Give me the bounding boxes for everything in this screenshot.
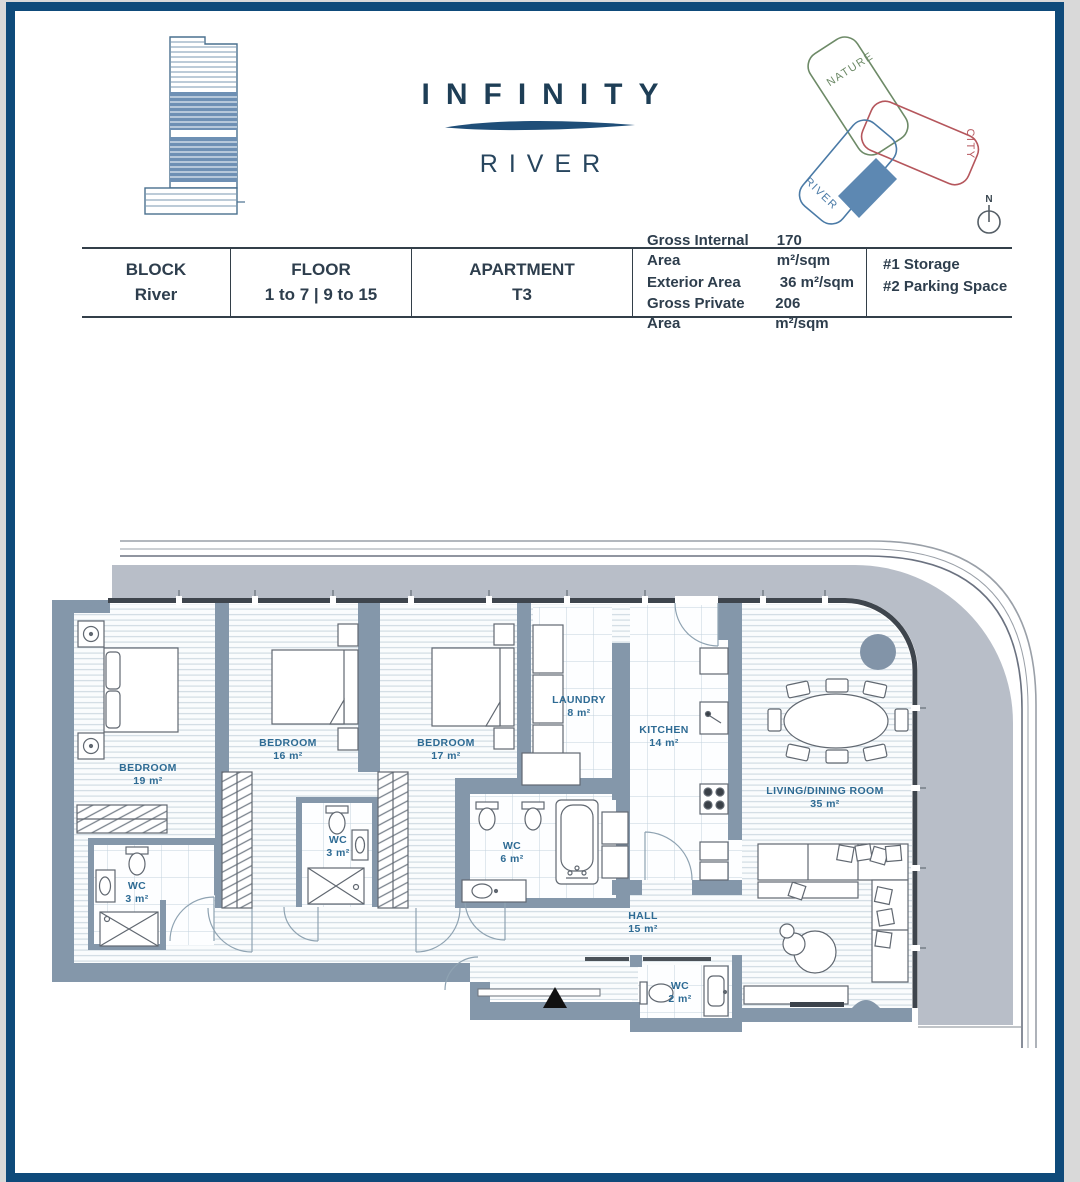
room-name: BEDROOM xyxy=(119,762,177,775)
info-cell-block: BLOCK River xyxy=(82,249,230,316)
apartment-highlight xyxy=(838,158,897,218)
room-area: 15 m² xyxy=(628,923,658,936)
room-label-wc3-mid: WC 3 m² xyxy=(326,834,349,860)
info-table: BLOCK River FLOOR 1 to 7 | 9 to 15 APART… xyxy=(82,247,1012,318)
room-area: 17 m² xyxy=(417,750,475,763)
room-name: BEDROOM xyxy=(417,737,475,750)
room-area: 35 m² xyxy=(766,798,883,811)
entry-door-leaf xyxy=(478,989,600,996)
room-name: WC xyxy=(326,834,349,847)
structural-column xyxy=(860,634,896,670)
area-row: Gross Private Area 206 m²/sqm xyxy=(647,294,854,334)
river-label: RIVER xyxy=(802,175,840,212)
room-name: HALL xyxy=(628,910,658,923)
room-label-kitchen: KITCHEN 14 m² xyxy=(639,724,688,750)
area-label: Exterior Area xyxy=(647,273,741,293)
room-name: WC xyxy=(125,880,148,893)
area-label: Gross Private Area xyxy=(647,294,775,334)
block-label: BLOCK xyxy=(126,260,186,280)
area-value: 206 m²/sqm xyxy=(775,294,854,334)
room-name: LAUNDRY xyxy=(552,694,606,707)
site-orientation-diagram: NATURE CITY RIVER N xyxy=(795,18,1035,243)
floor-label: FLOOR xyxy=(291,260,351,280)
apartment-value: T3 xyxy=(512,285,532,305)
compass-north-label: N xyxy=(985,194,992,205)
room-label-living-dining: LIVING/DINING ROOM 35 m² xyxy=(766,785,883,811)
info-cell-apartment: APARTMENT T3 xyxy=(411,249,632,316)
room-label-bedroom-17: BEDROOM 17 m² xyxy=(417,737,475,763)
brand-title: INFINITY xyxy=(370,78,710,112)
room-area: 8 m² xyxy=(552,707,606,720)
area-row: Gross Internal Area 170 m²/sqm xyxy=(647,231,854,271)
nature-label: NATURE xyxy=(825,50,876,89)
floor-plan xyxy=(0,500,1080,1080)
city-label: CITY xyxy=(964,128,976,159)
room-name: BEDROOM xyxy=(259,737,317,750)
extra-parking: #2 Parking Space xyxy=(883,277,1007,297)
room-area: 2 m² xyxy=(668,993,691,1006)
room-label-wc6: WC 6 m² xyxy=(500,840,523,866)
room-area: 3 m² xyxy=(125,893,148,906)
room-label-bedroom-19: BEDROOM 19 m² xyxy=(119,762,177,788)
room-area: 3 m² xyxy=(326,847,349,860)
area-label: Gross Internal Area xyxy=(647,231,777,271)
room-area: 6 m² xyxy=(500,853,523,866)
room-label-bedroom-16: BEDROOM 16 m² xyxy=(259,737,317,763)
compass-icon: N xyxy=(978,194,1000,233)
info-cell-areas: Gross Internal Area 170 m²/sqm Exterior … xyxy=(632,249,866,316)
room-name: WC xyxy=(500,840,523,853)
floor-value: 1 to 7 | 9 to 15 xyxy=(265,285,377,305)
area-value: 36 m²/sqm xyxy=(780,273,854,293)
block-value: River xyxy=(135,285,178,305)
area-row: Exterior Area 36 m²/sqm xyxy=(647,273,854,293)
apartment-label: APARTMENT xyxy=(469,260,574,280)
room-area: 14 m² xyxy=(639,737,688,750)
room-label-wc3-left: WC 3 m² xyxy=(125,880,148,906)
info-cell-floor: FLOOR 1 to 7 | 9 to 15 xyxy=(230,249,411,316)
extra-storage: #1 Storage xyxy=(883,255,960,275)
area-value: 170 m²/sqm xyxy=(777,231,854,271)
room-name: KITCHEN xyxy=(639,724,688,737)
tower-logo-icon xyxy=(140,34,250,220)
room-label-laundry: LAUNDRY 8 m² xyxy=(552,694,606,720)
room-name: WC xyxy=(668,980,691,993)
room-name: LIVING/DINING ROOM xyxy=(766,785,883,798)
wc2-sliding-door xyxy=(585,957,711,961)
info-cell-extras: #1 Storage #2 Parking Space xyxy=(866,249,1012,316)
nature-wing-outline xyxy=(802,31,913,160)
room-label-wc2: WC 2 m² xyxy=(668,980,691,1006)
brand-swoosh-icon xyxy=(430,118,650,136)
room-label-hall: HALL 15 m² xyxy=(628,910,658,936)
brand-subtitle: RIVER xyxy=(420,150,660,179)
room-area: 16 m² xyxy=(259,750,317,763)
room-area: 19 m² xyxy=(119,775,177,788)
